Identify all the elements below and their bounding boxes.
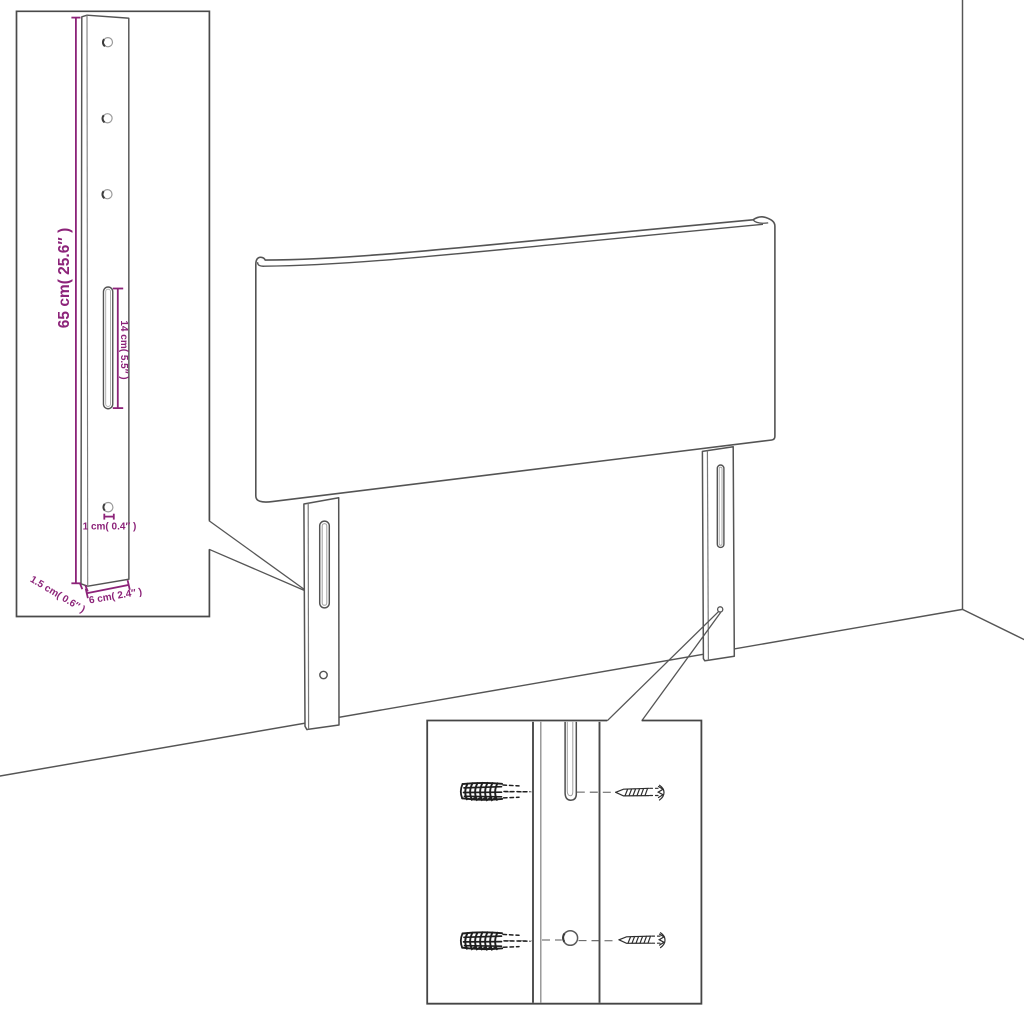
svg-text:65 cm( 25.6″ ): 65 cm( 25.6″ )	[56, 228, 73, 328]
svg-text:14 cm( 5.5″ ): 14 cm( 5.5″ )	[118, 320, 129, 379]
svg-text:1 cm( 0.4″ ): 1 cm( 0.4″ )	[83, 521, 137, 532]
